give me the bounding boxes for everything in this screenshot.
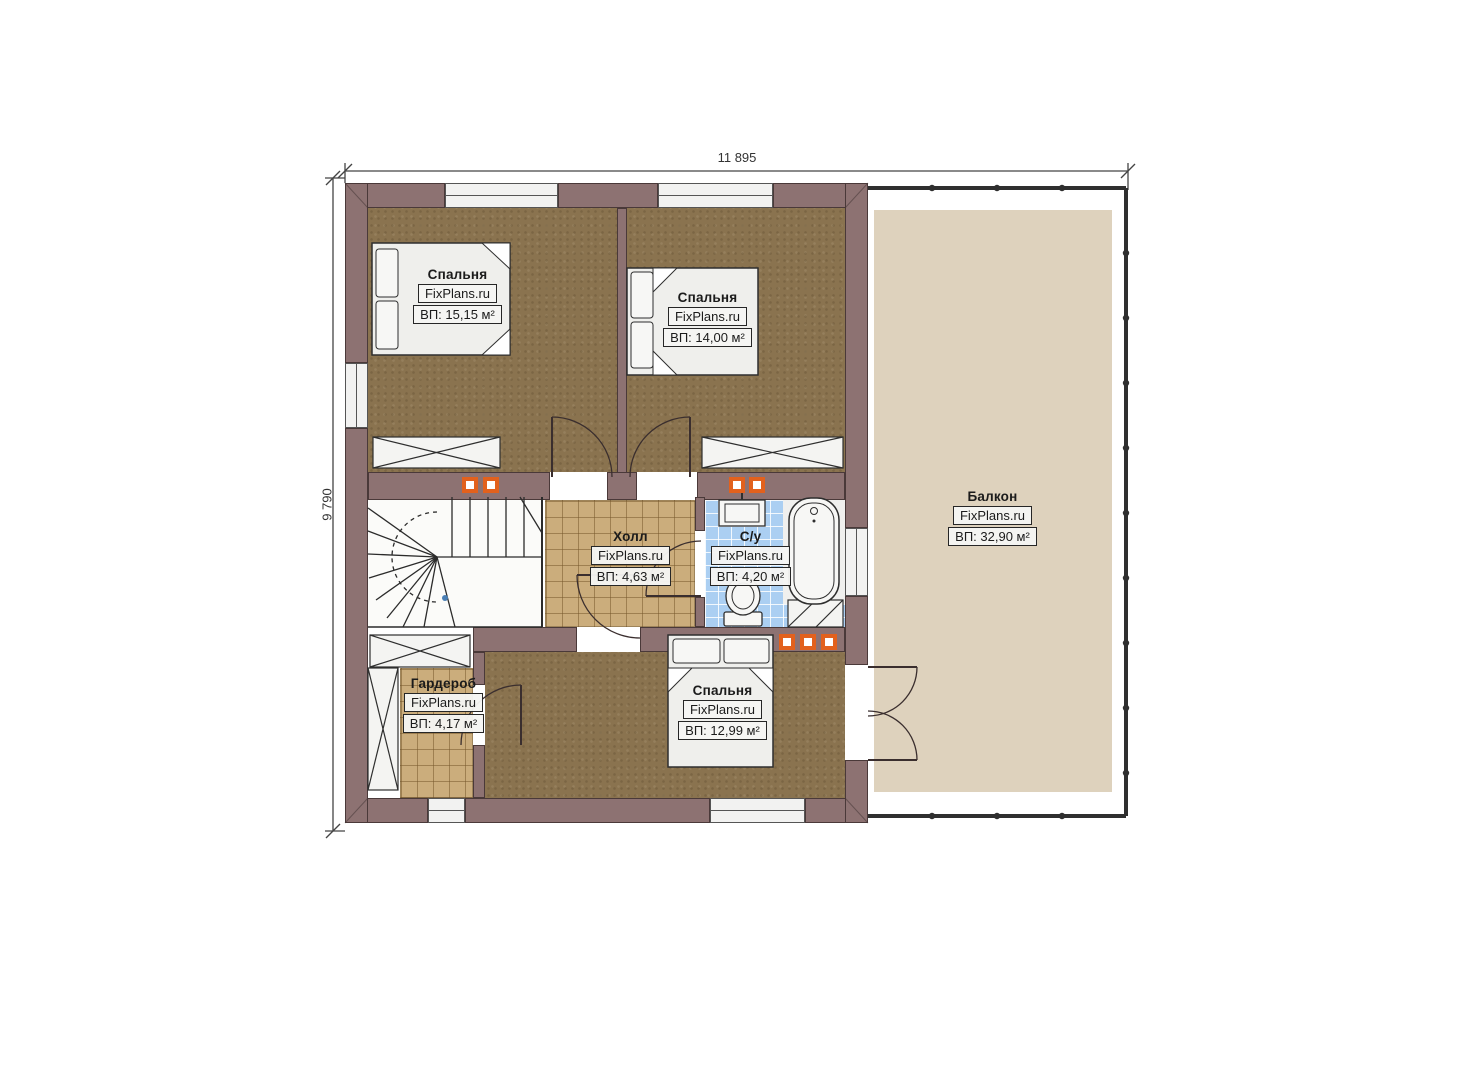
window bbox=[428, 798, 465, 823]
window bbox=[710, 798, 805, 823]
room-name: Спальня bbox=[678, 290, 738, 305]
vent-marker bbox=[779, 634, 795, 650]
room-floor-bedroom-1 bbox=[368, 208, 617, 472]
stairwell-floor bbox=[368, 500, 543, 627]
room-watermark: FixPlans.ru bbox=[418, 284, 497, 303]
wall-segment bbox=[697, 472, 845, 500]
room-label-wardrobe: Гардероб FixPlans.ru ВП: 4,17 м² bbox=[386, 676, 501, 733]
room-name: Балкон bbox=[968, 489, 1018, 504]
room-name: Холл bbox=[613, 529, 648, 544]
wall-segment bbox=[695, 597, 705, 627]
room-label-bedroom-2: Спальня FixPlans.ru ВП: 14,00 м² bbox=[650, 290, 765, 347]
vent-marker bbox=[821, 634, 837, 650]
room-name: Гардероб bbox=[411, 676, 476, 691]
wall-segment bbox=[607, 472, 637, 500]
vent-marker bbox=[749, 477, 765, 493]
wall-segment bbox=[845, 183, 868, 528]
wall-segment bbox=[345, 183, 368, 363]
dimension-height-label: 9 790 bbox=[320, 465, 335, 545]
window bbox=[345, 363, 368, 428]
wall-segment bbox=[473, 745, 485, 798]
window bbox=[445, 183, 558, 208]
room-area: ВП: 12,99 м² bbox=[678, 721, 767, 740]
window bbox=[845, 528, 868, 596]
room-watermark: FixPlans.ru bbox=[711, 546, 790, 565]
room-watermark: FixPlans.ru bbox=[404, 693, 483, 712]
room-name: С/у bbox=[740, 529, 762, 544]
room-area: ВП: 15,15 м² bbox=[413, 305, 502, 324]
wall-segment bbox=[845, 760, 868, 823]
wall-segment bbox=[558, 183, 658, 208]
vent-marker bbox=[483, 477, 499, 493]
room-watermark: FixPlans.ru bbox=[591, 546, 670, 565]
wall-segment bbox=[473, 627, 577, 652]
wall-segment bbox=[695, 497, 705, 531]
room-area: ВП: 32,90 м² bbox=[948, 527, 1037, 546]
window bbox=[658, 183, 773, 208]
room-label-bedroom-1: Спальня FixPlans.ru ВП: 15,15 м² bbox=[400, 267, 515, 324]
wall-segment bbox=[368, 472, 550, 500]
room-name: Спальня bbox=[428, 267, 488, 282]
room-area: ВП: 4,17 м² bbox=[403, 714, 484, 733]
room-label-hall: Холл FixPlans.ru ВП: 4,63 м² bbox=[573, 529, 688, 586]
wall-segment bbox=[345, 428, 368, 823]
vent-marker bbox=[462, 477, 478, 493]
vent-marker bbox=[729, 477, 745, 493]
room-watermark: FixPlans.ru bbox=[953, 506, 1032, 525]
floor-plan: Спальня FixPlans.ru ВП: 15,15 м² Спальня… bbox=[0, 0, 1473, 1080]
room-name: Спальня bbox=[693, 683, 753, 698]
wall-segment bbox=[465, 798, 710, 823]
room-label-bathroom: С/у FixPlans.ru ВП: 4,20 м² bbox=[693, 529, 808, 586]
wall-segment bbox=[845, 596, 868, 665]
room-label-bedroom-3: Спальня FixPlans.ru ВП: 12,99 м² bbox=[665, 683, 780, 740]
wall-segment bbox=[617, 208, 627, 477]
room-label-balcony: Балкон FixPlans.ru ВП: 32,90 м² bbox=[935, 489, 1050, 546]
room-watermark: FixPlans.ru bbox=[683, 700, 762, 719]
room-watermark: FixPlans.ru bbox=[668, 307, 747, 326]
vent-marker bbox=[800, 634, 816, 650]
room-area: ВП: 4,63 м² bbox=[590, 567, 671, 586]
dimension-width-label: 11 895 bbox=[697, 150, 777, 165]
room-area: ВП: 4,20 м² bbox=[710, 567, 791, 586]
room-area: ВП: 14,00 м² bbox=[663, 328, 752, 347]
